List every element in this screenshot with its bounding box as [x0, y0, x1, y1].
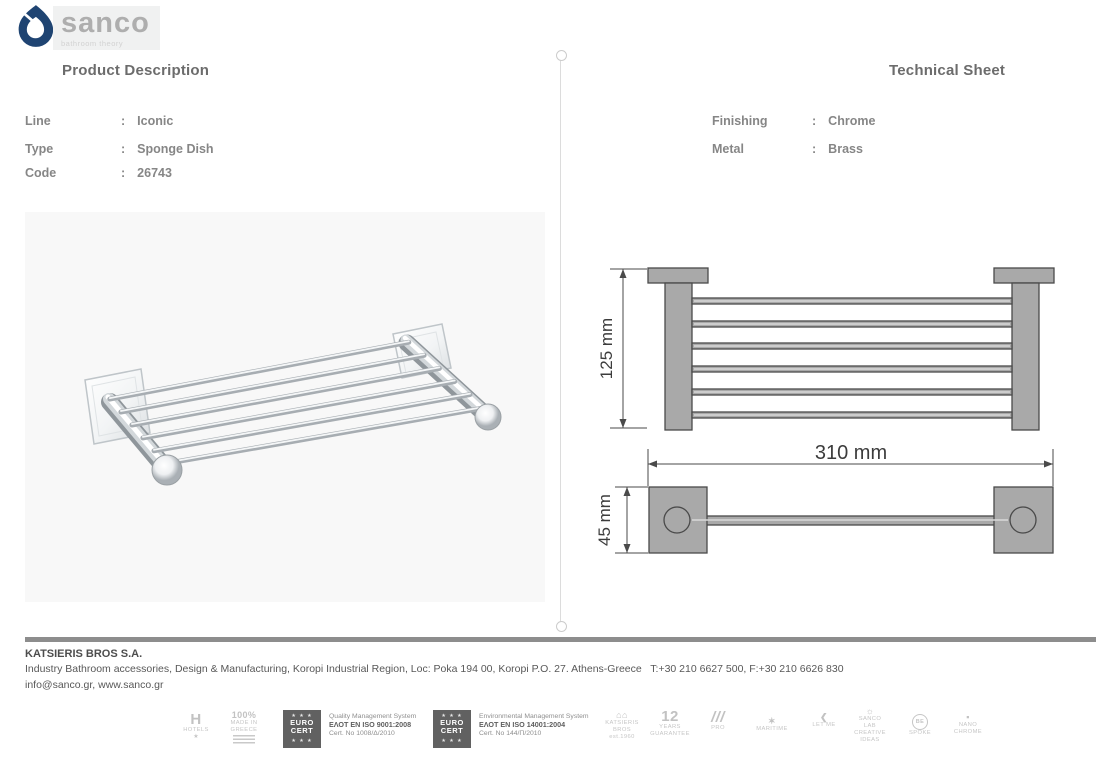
badge-pro: /// PRO	[698, 710, 738, 732]
badge-12-years: 12 YEARS GUARANTEE	[650, 709, 690, 738]
brand-name: sanco	[61, 9, 150, 38]
field-code-label: Code	[25, 166, 121, 180]
field-code: Code:26743	[25, 166, 172, 180]
slashes-icon: ///	[698, 710, 738, 725]
greek-flag-icon	[233, 735, 255, 745]
datasheet-page: sanco bathroom theory Product Descriptio…	[0, 0, 1102, 770]
footer-company: KATSIERIS BROS S.A.	[25, 648, 142, 660]
footer-address: Industry Bathroom accessories, Design & …	[25, 663, 844, 675]
field-finishing-label: Finishing	[712, 114, 812, 128]
badge-nano-chrome: ▪ NANO CHROME	[944, 712, 992, 736]
field-type-value: Sponge Dish	[137, 142, 213, 156]
badge-made-in-greece: 100% MADE IN GREECE	[220, 710, 268, 745]
badge-maritime: ✶ MARITIME	[744, 716, 800, 733]
front-right-post	[1012, 283, 1039, 430]
footer-contact[interactable]: info@sanco.gr, www.sanco.gr	[25, 679, 163, 691]
badge-hotels: H HOTELS ★	[176, 712, 216, 741]
field-line: Line:Iconic	[25, 114, 173, 128]
chevron-icon: ❮	[804, 712, 844, 722]
front-right-cap	[994, 268, 1054, 283]
brand-tagline: bathroom theory	[61, 39, 150, 48]
field-type: Type:Sponge Dish	[25, 142, 214, 156]
field-metal: Metal:Brass	[712, 142, 863, 156]
field-sep: :	[121, 142, 125, 156]
field-sep: :	[121, 114, 125, 128]
front-left-cap	[648, 268, 708, 283]
depth-dimension	[615, 487, 648, 553]
product-description-title: Product Description	[62, 62, 209, 79]
top-left-circle	[664, 507, 690, 533]
hotels-icon: H	[176, 712, 216, 727]
eurocert-logo: ★ ★ ★ EURO CERT ★ ★ ★	[433, 710, 471, 748]
pixel-icon: ▪	[944, 712, 992, 722]
field-metal-value: Brass	[828, 142, 863, 156]
field-metal-label: Metal	[712, 142, 812, 156]
be-ring-icon: BE	[912, 714, 928, 730]
top-right-circle	[1010, 507, 1036, 533]
footer-divider-bar	[25, 637, 1096, 642]
brand-wordmark: sanco bathroom theory	[53, 6, 160, 50]
field-finishing-value: Chrome	[828, 114, 875, 128]
certification-badges: H HOTELS ★ 100% MADE IN GREECE ★ ★ ★ EUR…	[0, 704, 1102, 758]
hotels-star-icon: ★	[176, 734, 216, 741]
field-sep: :	[812, 114, 816, 128]
badge-sanco-lab: ☼ SANCO LAB CREATIVE IDEAS	[848, 706, 892, 744]
field-sep: :	[121, 166, 125, 180]
badge-katsieris-bros: ⌂⌂ KATSIERIS BROS est.1960	[596, 710, 648, 741]
field-finishing: Finishing:Chrome	[712, 114, 875, 128]
badge-bespoke: BE SPOKE	[898, 714, 942, 737]
star-icon: ✶	[744, 716, 800, 726]
divider-top-dot	[556, 50, 567, 61]
right-arm-cap	[475, 404, 501, 430]
technical-drawing: 125 mm 310 mm 45 mm	[580, 250, 1080, 570]
field-code-value: 26743	[137, 166, 172, 180]
roofs-icon: ⌂⌂	[596, 710, 648, 720]
brand-logo: sanco bathroom theory	[15, 4, 160, 50]
field-line-label: Line	[25, 114, 121, 128]
bulb-icon: ☼	[848, 706, 892, 716]
left-arm-cap	[152, 455, 182, 485]
divider-bottom-dot	[556, 621, 567, 632]
field-sep: :	[812, 142, 816, 156]
technical-sheet-title: Technical Sheet	[889, 62, 1005, 79]
drop-icon	[15, 4, 55, 48]
depth-dimension-label: 45 mm	[595, 494, 614, 546]
field-type-label: Type	[25, 142, 121, 156]
column-divider	[560, 60, 561, 622]
sponge-dish-render	[25, 212, 545, 602]
eurocert-logo: ★ ★ ★ EURO CERT ★ ★ ★	[283, 710, 321, 748]
width-dimension-label: 310 mm	[815, 442, 887, 464]
field-line-value: Iconic	[137, 114, 173, 128]
height-dimension-label: 125 mm	[597, 318, 616, 379]
front-left-post	[665, 283, 692, 430]
badge-let-me: ❮ LET ME	[804, 712, 844, 729]
product-photo	[25, 212, 545, 602]
